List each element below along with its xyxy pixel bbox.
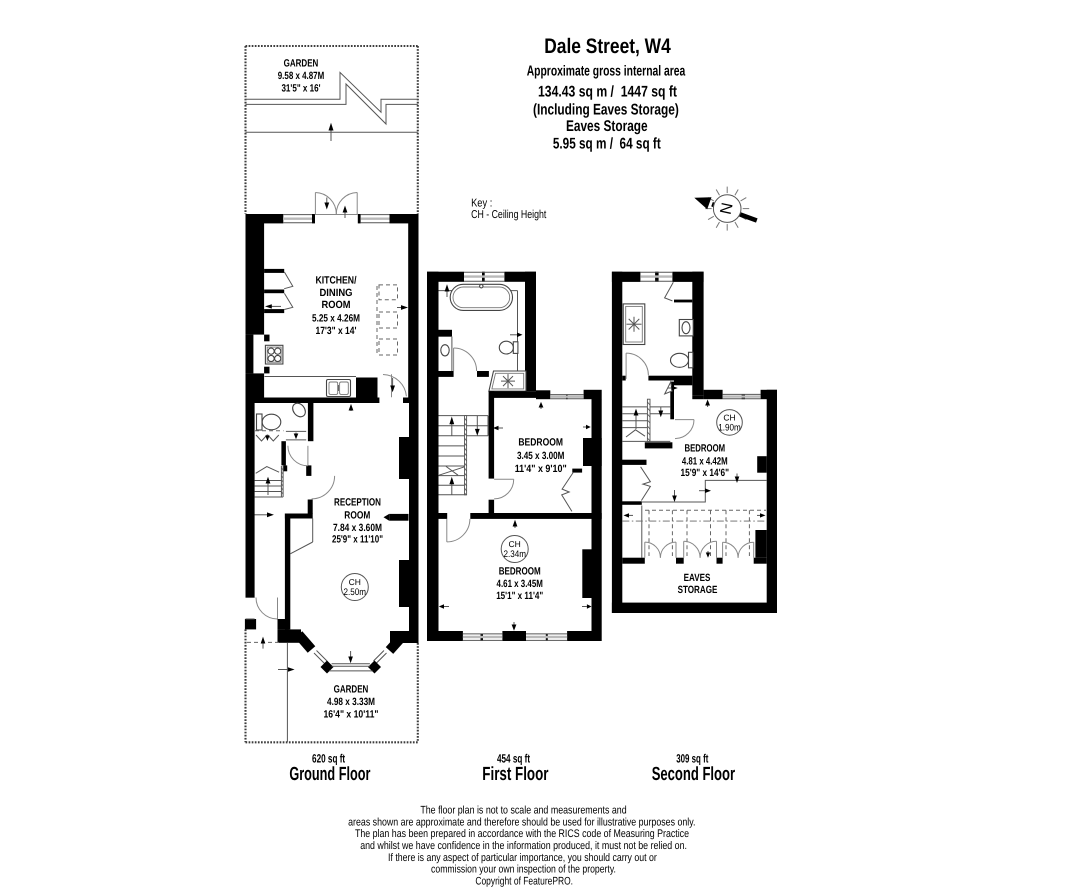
svg-text:The floor plan is not to scale: The floor plan is not to scale and measu… xyxy=(420,805,626,817)
svg-text:16'4" x 10'11": 16'4" x 10'11" xyxy=(324,708,379,720)
svg-text:GARDEN: GARDEN xyxy=(334,684,369,696)
svg-text:1.90m: 1.90m xyxy=(718,422,741,433)
svg-text:BEDROOM: BEDROOM xyxy=(518,437,563,449)
svg-text:15'1" x 11'4": 15'1" x 11'4" xyxy=(496,590,543,602)
svg-text:17'3" x 14': 17'3" x 14' xyxy=(316,325,357,337)
svg-text:9.58 x 4.87M: 9.58 x 4.87M xyxy=(278,70,325,82)
svg-text:4.61 x 3.45M: 4.61 x 3.45M xyxy=(497,578,543,590)
svg-text:The plan has been prepared in: The plan has been prepared in accordance… xyxy=(355,828,689,840)
svg-text:5.25 x 4.26M: 5.25 x 4.26M xyxy=(312,313,360,325)
svg-text:15'9" x 14'6": 15'9" x 14'6" xyxy=(681,467,730,479)
svg-text:Approximate gross internal are: Approximate gross internal area xyxy=(527,64,686,80)
svg-text:First Floor: First Floor xyxy=(482,764,549,785)
svg-text:31'5" x 16': 31'5" x 16' xyxy=(281,82,320,94)
svg-text:CH: CH xyxy=(723,412,735,422)
svg-text:(Including Eaves Storage): (Including Eaves Storage) xyxy=(533,102,679,119)
svg-text:GARDEN: GARDEN xyxy=(284,58,319,70)
svg-text:KITCHEN/: KITCHEN/ xyxy=(316,275,357,287)
svg-text:2.34m: 2.34m xyxy=(503,549,526,560)
svg-text:BEDROOM: BEDROOM xyxy=(499,565,541,577)
svg-text:STORAGE: STORAGE xyxy=(678,584,718,596)
svg-text:Eaves Storage: Eaves Storage xyxy=(566,118,648,135)
svg-text:7.84 x 3.60M: 7.84 x 3.60M xyxy=(333,522,382,534)
svg-text:If there is any aspect of part: If there is any aspect of particular imp… xyxy=(388,852,657,864)
svg-text:4.81 x 4.42M: 4.81 x 4.42M xyxy=(682,456,728,468)
svg-text:Copyright of FeaturePRO.: Copyright of FeaturePRO. xyxy=(475,875,573,887)
svg-text:Dale Street, W4: Dale Street, W4 xyxy=(544,35,671,58)
svg-text:25'9" x 11'10": 25'9" x 11'10" xyxy=(332,533,383,545)
svg-text:Ground Floor: Ground Floor xyxy=(289,764,370,785)
svg-text:commission your own inspection: commission your own inspection of the pr… xyxy=(431,864,616,876)
svg-text:2.50m: 2.50m xyxy=(344,587,367,598)
svg-text:areas shown are approximate an: areas shown are approximate and therefor… xyxy=(348,816,695,828)
svg-text:4.98 x 3.33M: 4.98 x 3.33M xyxy=(327,696,375,708)
svg-text:Key :: Key : xyxy=(471,198,492,210)
svg-text:5.95 sq m / 64 sq ft: 5.95 sq m / 64 sq ft xyxy=(553,136,661,153)
svg-text:RECEPTION: RECEPTION xyxy=(334,496,381,508)
svg-text:BEDROOM: BEDROOM xyxy=(685,443,726,455)
svg-text:3.45 x 3.00M: 3.45 x 3.00M xyxy=(517,450,565,462)
svg-text:CH: CH xyxy=(509,539,521,549)
svg-text:11'4" x 9'10": 11'4" x 9'10" xyxy=(515,463,567,475)
svg-text:ROOM: ROOM xyxy=(344,509,370,521)
svg-text:CH: CH xyxy=(349,577,361,587)
svg-text:and whilst we have confidence: and whilst we have confidence in the inf… xyxy=(360,840,687,852)
svg-text:CH - Ceiling Height: CH - Ceiling Height xyxy=(471,209,547,221)
svg-text:DINING: DINING xyxy=(320,287,353,299)
svg-text:ROOM: ROOM xyxy=(322,299,351,311)
svg-text:EAVES: EAVES xyxy=(684,572,711,584)
svg-text:Second Floor: Second Floor xyxy=(652,764,736,785)
svg-text:134.43 sq m / 1447 sq ft: 134.43 sq m / 1447 sq ft xyxy=(538,84,677,101)
